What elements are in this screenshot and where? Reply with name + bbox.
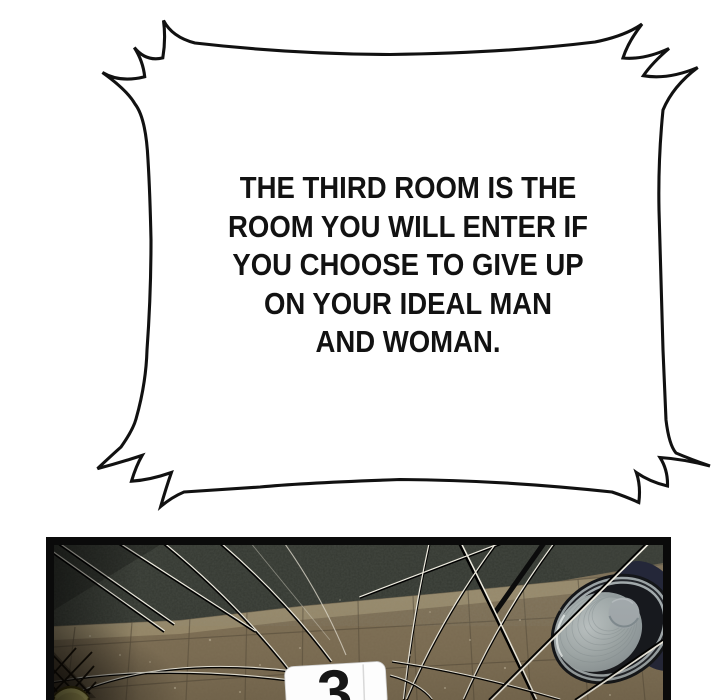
svg-text:3: 3 (315, 657, 354, 700)
